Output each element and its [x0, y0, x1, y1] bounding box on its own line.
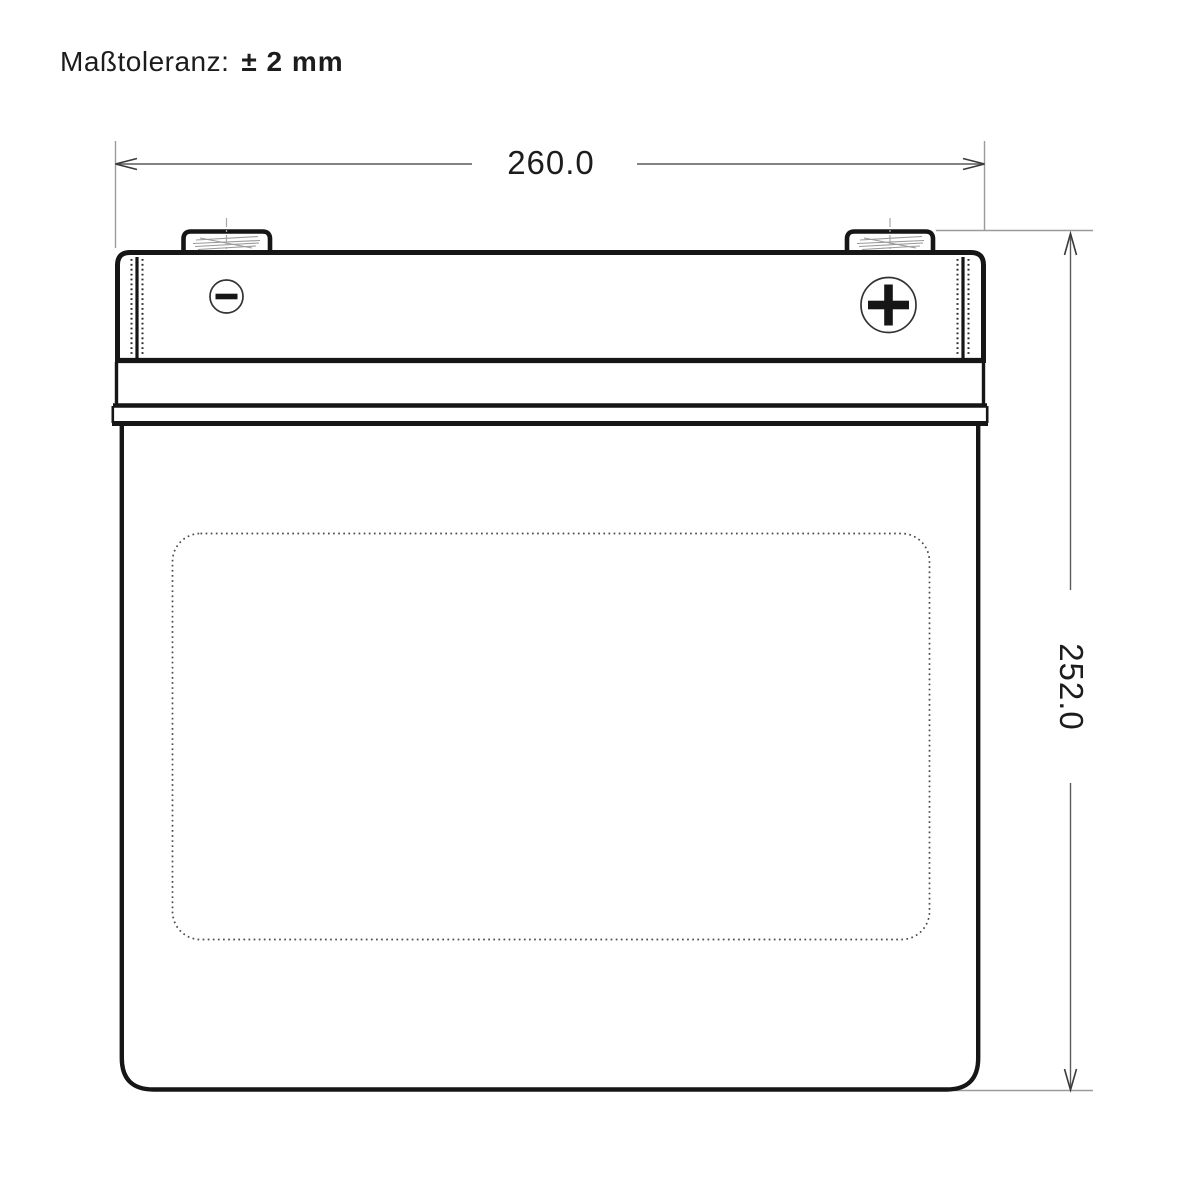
- minus-bar: [216, 294, 238, 300]
- plus-bar-vertical: [884, 285, 893, 326]
- plus-in-circle-icon: [861, 278, 916, 333]
- width-dimension-value: 260.0: [471, 144, 631, 182]
- minus-in-circle-icon: [210, 280, 243, 313]
- technical-drawing-canvas: Maßtoleranz:± 2 mm: [0, 0, 1200, 1200]
- battery-container: [122, 426, 978, 1090]
- battery-lid: [118, 253, 984, 364]
- battery-outline-group: [112, 218, 988, 1090]
- height-dimension-value: 252.0: [1052, 607, 1090, 767]
